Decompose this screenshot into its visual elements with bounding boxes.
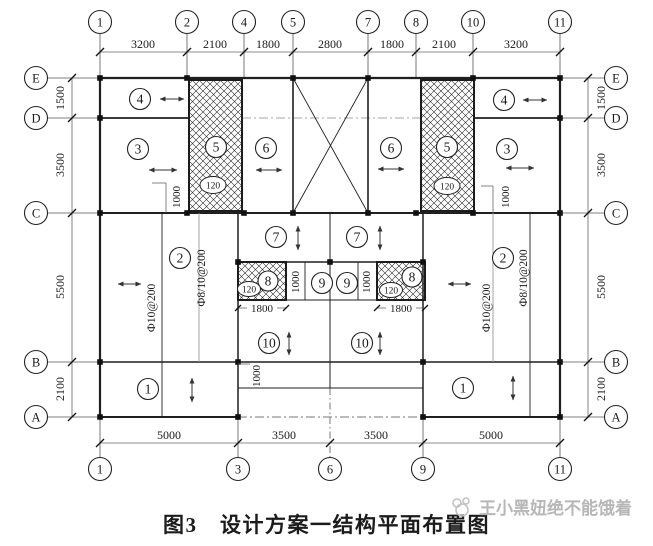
dim-label: 2100	[594, 377, 608, 401]
panel-label-1-left: 1	[145, 382, 152, 397]
left-leader-lines	[48, 78, 101, 417]
grid-label: A	[31, 411, 40, 425]
top-axis: 1 2 4 5 7 8 10 11 3200 2100 1800 2800 18…	[89, 11, 572, 79]
rebar-note-phi10-right: Ф10@200	[481, 284, 493, 333]
grid-label: 11	[554, 16, 566, 30]
panel-label-6-left: 6	[263, 141, 270, 156]
right-grid-bubbles: E D C B A	[605, 67, 628, 429]
plan-walls-and-beams	[100, 78, 560, 417]
rebar-note-phi8-10-left: Ф8/10@200	[196, 249, 208, 307]
watermark: 王小黑妞绝不能饿着	[450, 494, 632, 519]
rebar-note-phi10-left: Ф10@200	[146, 284, 158, 333]
watermark-icon	[450, 496, 474, 518]
dim-1000: 1000	[171, 186, 183, 209]
panel-label-6-right: 6	[388, 141, 395, 156]
panel-label-2-right: 2	[500, 251, 507, 266]
panel-label-8-left: 8	[265, 274, 272, 289]
dim-label: 3200	[131, 37, 155, 51]
grid-label: 3	[235, 463, 241, 477]
dim-1800-right: 1800	[390, 303, 413, 315]
grid-label: 10	[467, 16, 480, 30]
bottom-grid-bubbles: 1 3 6 9 11	[89, 458, 572, 481]
slab-thickness-left: 120	[206, 182, 221, 192]
right-axis: E D C B A 1500 3500 5500 2100	[560, 67, 628, 429]
dim-label: 5500	[53, 275, 67, 299]
panel-label-5-left: 5	[213, 140, 220, 155]
slab-thickness-right: 120	[440, 183, 455, 193]
dim-label: 5000	[479, 428, 503, 442]
grid-label: E	[32, 72, 40, 86]
grid-label: 2	[184, 16, 190, 30]
panel-label-9-right: 9	[344, 276, 351, 291]
left-axis: E D C B A 1500 3500 5500 2100	[25, 67, 101, 429]
panel-label-5-right: 5	[444, 140, 451, 155]
grid-label: A	[611, 411, 620, 425]
dim-label: 2100	[432, 37, 456, 51]
panel-label-4-left: 4	[137, 92, 144, 107]
structural-plan-drawing: 1 2 4 5 7 8 10 11 3200 2100 1800 2800 18…	[0, 0, 653, 505]
rebar-note-phi8-10-right: Ф8/10@200	[518, 249, 530, 307]
bottom-leader-lines	[100, 388, 560, 457]
top-grid-bubbles: 1 2 4 5 7 8 10 11	[89, 11, 572, 34]
dim-label: 5000	[157, 428, 181, 442]
panel-label-9-left: 9	[319, 276, 326, 291]
dim-label: 3500	[594, 153, 608, 177]
grid-label: D	[31, 112, 40, 126]
dim-label: 1500	[594, 86, 608, 110]
dim-1000: 1000	[500, 186, 512, 209]
grid-label: B	[612, 356, 620, 370]
dim-label: 5500	[594, 275, 608, 299]
dim-label: 3500	[272, 428, 296, 442]
grid-label: 5	[290, 16, 296, 30]
slab-thickness-8-left: 120	[242, 286, 257, 296]
dim-label: 1800	[380, 37, 404, 51]
panel-annotations: 4 4 3 3 5 5 120 120 6 6 7 7 2 2 8 8	[118, 89, 547, 403]
dim-label: 1800	[256, 37, 280, 51]
floor-opening-x	[293, 78, 368, 213]
slab-thickness-8-right: 120	[384, 287, 399, 297]
grid-label: 1	[97, 16, 103, 30]
dim-label: 2100	[203, 37, 227, 51]
panel-label-3-right: 3	[504, 142, 511, 157]
left-dim-labels: 1500 3500 5500 2100	[53, 86, 67, 401]
grid-label: E	[612, 72, 620, 86]
grid-label: 1	[97, 463, 103, 477]
right-dim-labels: 1500 3500 5500 2100	[594, 86, 608, 401]
panel-label-10-right: 10	[355, 336, 369, 351]
dim-label: 3200	[504, 37, 528, 51]
panel-label-2-left: 2	[177, 251, 184, 266]
panel-label-7-left: 7	[273, 230, 280, 245]
grid-label: 6	[327, 463, 333, 477]
bottom-axis: 1 3 6 9 11 5000 3500 3500 5000	[89, 388, 572, 481]
panel-label-3-left: 3	[135, 142, 142, 157]
dim-label: 1500	[53, 86, 67, 110]
dim-label: 2100	[53, 377, 67, 401]
dim-1000: 1000	[290, 271, 302, 294]
grid-label: C	[32, 207, 40, 221]
grid-label: D	[611, 112, 620, 126]
right-leader-lines	[560, 78, 605, 417]
figure-canvas: { "caption": "图3 设计方案一结构平面布置图", "waterma…	[0, 0, 653, 546]
grid-label: 9	[420, 463, 426, 477]
grid-label: 7	[365, 16, 371, 30]
dim-label: 3500	[364, 428, 388, 442]
panel-label-10-left: 10	[262, 336, 276, 351]
panel-label-8-right: 8	[409, 270, 416, 285]
left-grid-bubbles: E D C B A	[25, 67, 48, 429]
grid-label: 4	[241, 16, 248, 30]
dim-label: 3500	[53, 153, 67, 177]
panel-label-4-right: 4	[501, 93, 508, 108]
grid-label: C	[612, 207, 620, 221]
panel-label-7-right: 7	[354, 230, 361, 245]
panel-label-1-right: 1	[460, 381, 467, 396]
grid-label: 11	[554, 463, 566, 477]
dim-1000: 1000	[251, 365, 263, 388]
dim-label: 2800	[318, 37, 342, 51]
dim-1000: 1000	[361, 271, 373, 294]
grid-label: B	[32, 356, 40, 370]
dim-1800-left: 1800	[251, 303, 274, 315]
watermark-text: 王小黑妞绝不能饿着	[479, 494, 632, 519]
grid-label: 8	[413, 16, 419, 30]
